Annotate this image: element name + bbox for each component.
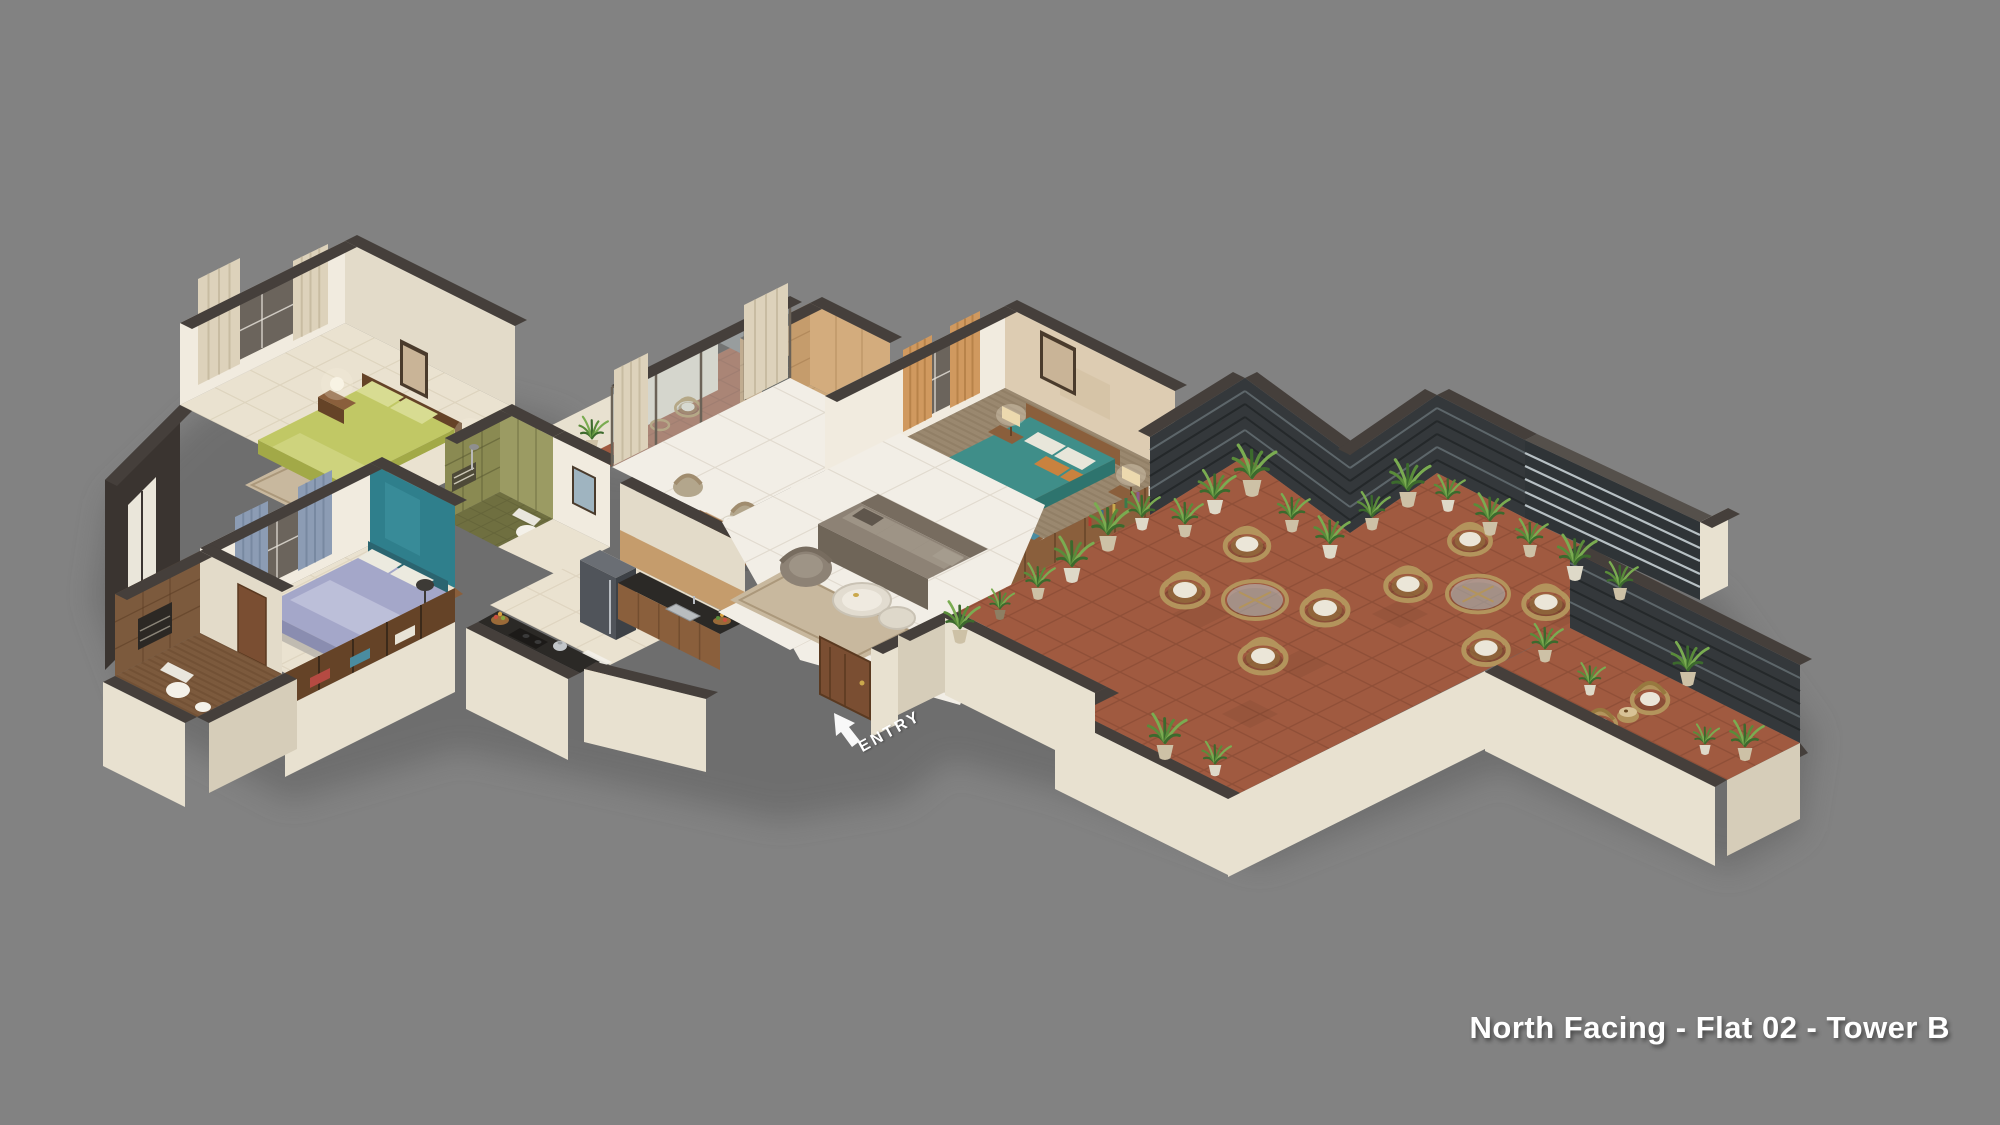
plan-title: North Facing - Flat 02 - Tower B bbox=[1470, 1010, 1950, 1046]
floor-plan-render bbox=[0, 0, 2000, 1125]
floor-plan-stage: North Facing - Flat 02 - Tower B ENTRY bbox=[0, 0, 2000, 1125]
